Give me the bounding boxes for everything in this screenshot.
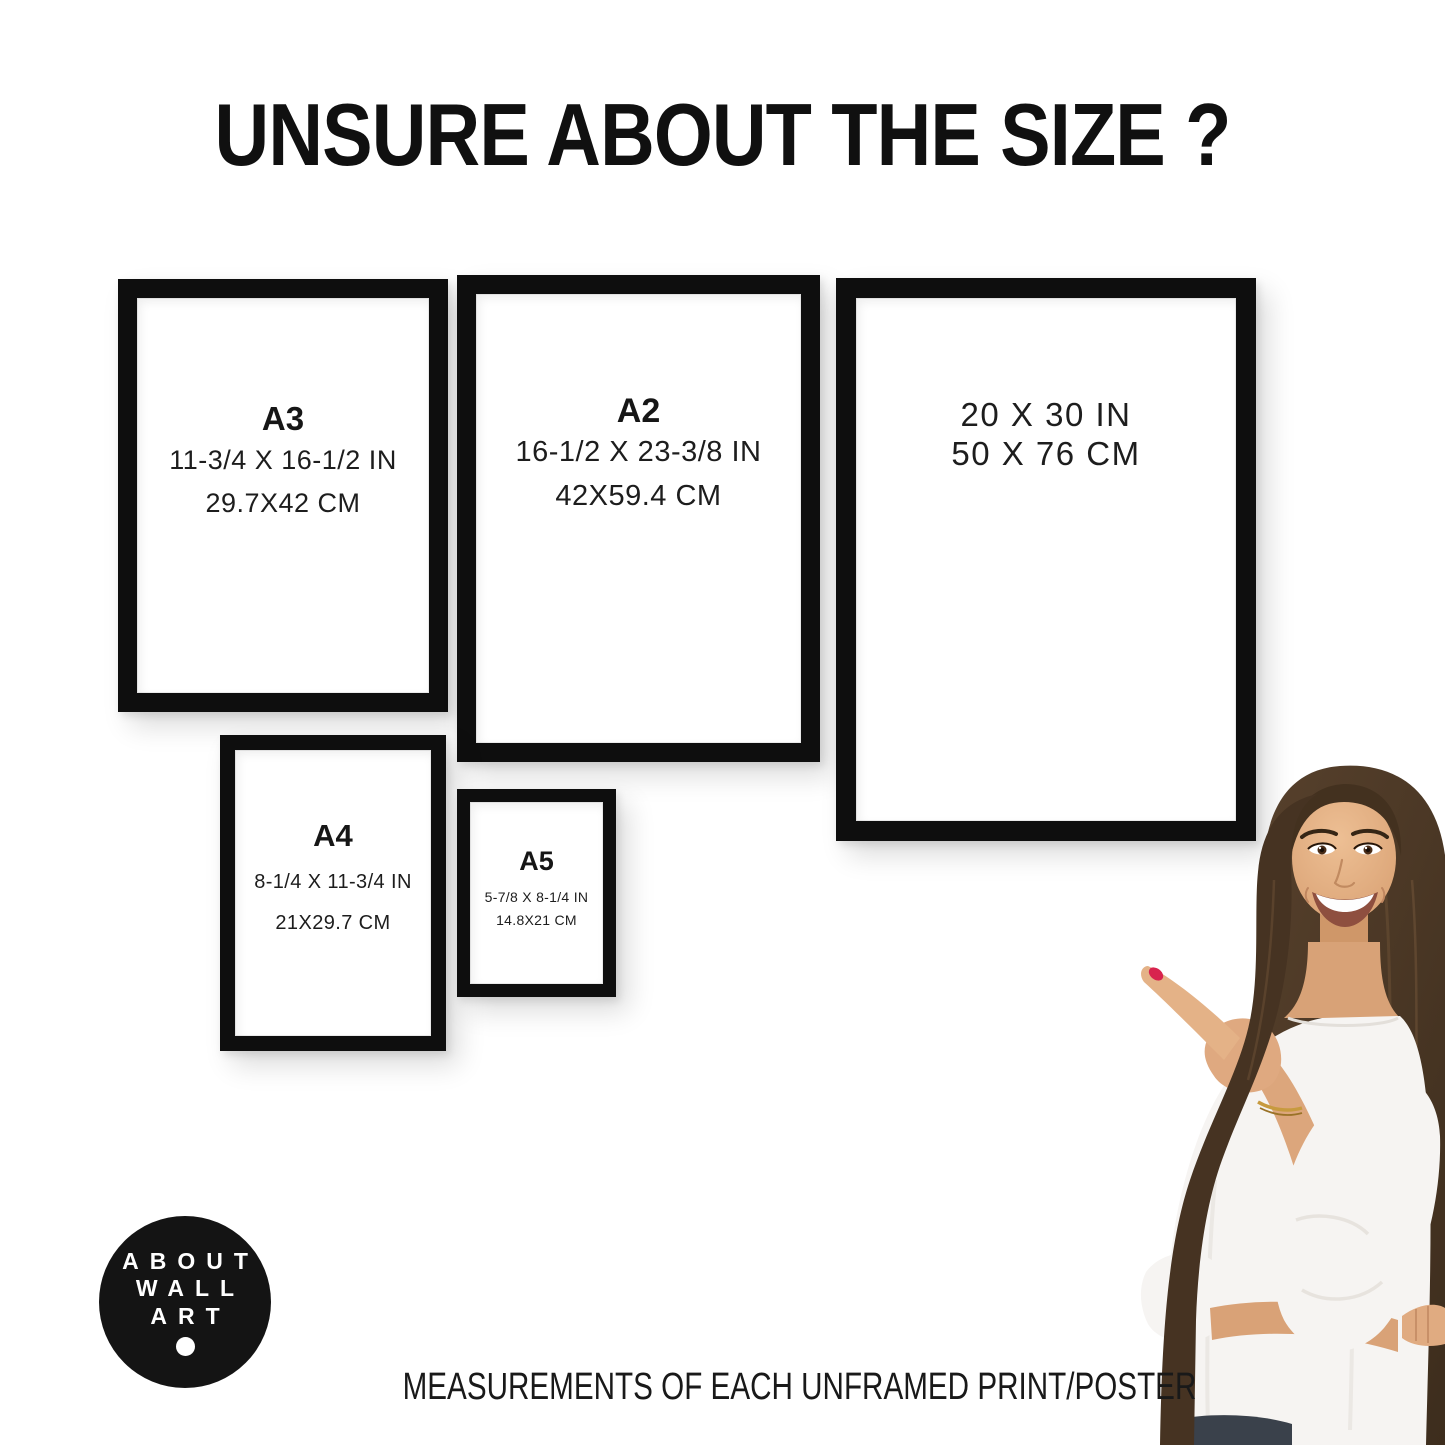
frame-size-cm: 50 X 76 CM bbox=[856, 435, 1236, 474]
frame-size-inches: 16-1/2 X 23-3/8 IN bbox=[476, 431, 801, 475]
caption: MEASUREMENTS OF EACH UNFRAMED PRINT/POST… bbox=[403, 1366, 918, 1409]
frame-a5-label: A5 5-7/8 X 8-1/4 IN 14.8X21 CM bbox=[470, 802, 603, 927]
frame-size-cm: 14.8X21 CM bbox=[470, 913, 603, 927]
frame-size-inches: 5-7/8 X 8-1/4 IN bbox=[470, 890, 603, 904]
frame-a2: A2 16-1/2 X 23-3/8 IN 42X59.4 CM bbox=[457, 275, 820, 762]
frame-size-cm: 29.7X42 CM bbox=[137, 482, 429, 525]
frame-size-inches: 11-3/4 X 16-1/2 IN bbox=[137, 439, 429, 482]
frame-size-cm: 21X29.7 CM bbox=[235, 913, 431, 933]
frame-a4-label: A4 8-1/4 X 11-3/4 IN 21X29.7 CM bbox=[235, 750, 431, 933]
frame-size-inches: 8-1/4 X 11-3/4 IN bbox=[235, 872, 431, 892]
frame-a4: A4 8-1/4 X 11-3/4 IN 21X29.7 CM bbox=[220, 735, 446, 1051]
page-title: UNSURE ABOUT THE SIZE ? bbox=[101, 84, 1344, 186]
frame-name: A5 bbox=[470, 848, 603, 875]
frame-a3-label: A3 11-3/4 X 16-1/2 IN 29.7X42 CM bbox=[137, 298, 429, 525]
frame-size-cm: 42X59.4 CM bbox=[476, 475, 801, 519]
pointing-woman-photo bbox=[1050, 760, 1445, 1445]
frame-a5: A5 5-7/8 X 8-1/4 IN 14.8X21 CM bbox=[457, 789, 616, 997]
frame-name: A3 bbox=[137, 402, 429, 435]
frame-name: A4 bbox=[235, 820, 431, 851]
frame-20x30-label: 20 X 30 IN 50 X 76 CM bbox=[856, 298, 1236, 474]
brand-logo: ABOUT WALL ART bbox=[99, 1216, 271, 1388]
frame-name: A2 bbox=[476, 394, 801, 428]
size-guide-infographic: UNSURE ABOUT THE SIZE ? A3 11-3/4 X 16-1… bbox=[0, 0, 1445, 1445]
frame-a2-label: A2 16-1/2 X 23-3/8 IN 42X59.4 CM bbox=[476, 294, 801, 518]
logo-dot bbox=[176, 1337, 195, 1356]
frame-20x30: 20 X 30 IN 50 X 76 CM bbox=[836, 278, 1256, 841]
brand-logo-text: ART bbox=[139, 1303, 230, 1331]
brand-logo-text: WALL bbox=[125, 1275, 245, 1303]
brand-logo-text: ABOUT bbox=[111, 1248, 259, 1276]
frame-size-inches: 20 X 30 IN bbox=[856, 396, 1236, 435]
frame-a3: A3 11-3/4 X 16-1/2 IN 29.7X42 CM bbox=[118, 279, 448, 712]
